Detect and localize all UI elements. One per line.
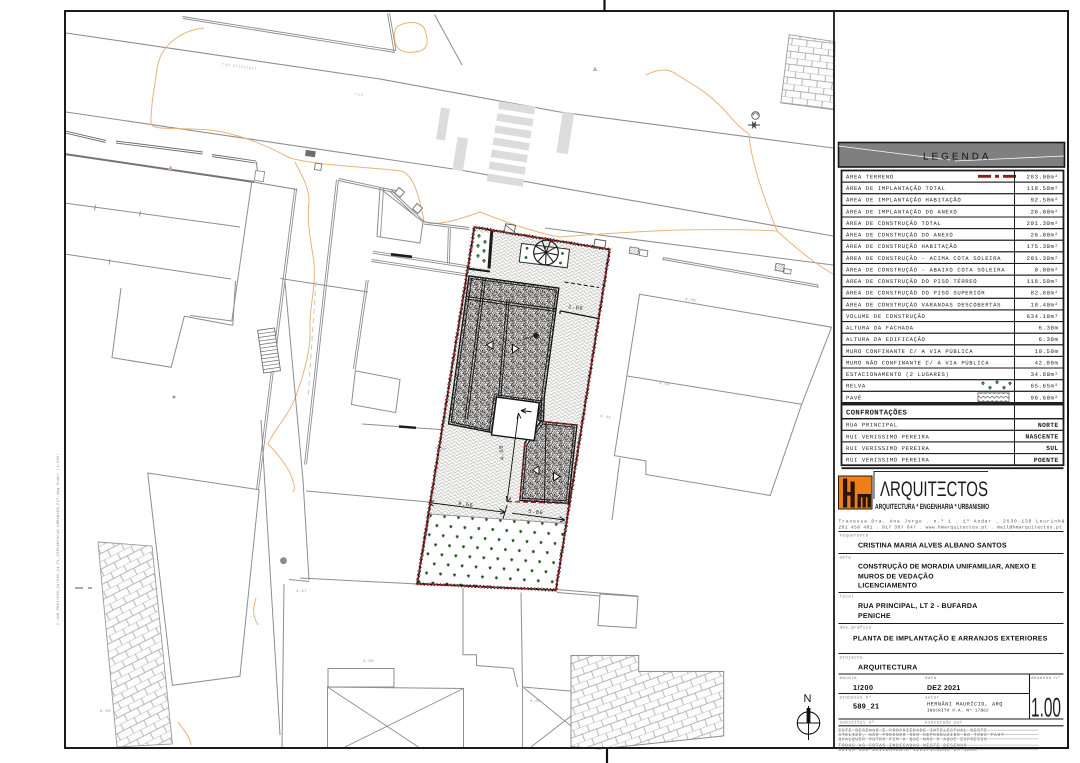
svg-text:ÁREA DE CONSTRUÇÃO TOTAL: ÁREA DE CONSTRUÇÃO TOTAL [846, 220, 941, 227]
svg-text:ÁREA DE CONSTRUÇÃO DO PISO SUP: ÁREA DE CONSTRUÇÃO DO PISO SUPERIOR [846, 290, 985, 297]
svg-text:634.10m³: 634.10m³ [1027, 313, 1059, 320]
svg-text:82.80m²: 82.80m² [1031, 290, 1059, 297]
svg-text:HERNÂNI MAURÍCIO, ARQ: HERNÂNI MAURÍCIO, ARQ [927, 701, 1003, 708]
svg-text:18.40m²: 18.40m² [1031, 301, 1059, 308]
svg-text:LICENCIAMENTO: LICENCIAMENTO [858, 583, 917, 590]
svg-text:201.30m²: 201.30m² [1027, 255, 1059, 262]
svg-text:Travessa Dra. Ana Jorge . n.º: Travessa Dra. Ana Jorge . n.º 1 . 1º And… [839, 519, 1066, 525]
svg-text:DEVEM SER DEVIDAMENTE VERIFICA: DEVEM SER DEVIDAMENTE VERIFICADAS EM OBR… [839, 748, 978, 753]
svg-text:VOLUME DE CONSTRUÇÃO: VOLUME DE CONSTRUÇÃO [846, 313, 926, 320]
svg-text:MUROS DE VEDAÇÃO: MUROS DE VEDAÇÃO [858, 572, 934, 581]
svg-text:ÁREA DE IMPLANTAÇÃO DO ANEXO: ÁREA DE IMPLANTAÇÃO DO ANEXO [846, 208, 957, 215]
svg-text:ÁREA DE IMPLANTAÇÃO HABITAÇÃO: ÁREA DE IMPLANTAÇÃO HABITAÇÃO [846, 197, 961, 204]
svg-text:42.00m: 42.00m [1035, 359, 1059, 366]
svg-text:ÁREA DE CONSTRUÇÃO HABITAÇÃO: ÁREA DE CONSTRUÇÃO HABITAÇÃO [846, 243, 957, 250]
svg-text:DEZ 2021: DEZ 2021 [927, 685, 961, 692]
svg-text:118.50m²: 118.50m² [1027, 185, 1059, 192]
svg-text:POENTE: POENTE [1034, 457, 1059, 464]
svg-text:ESTACIONAMENTO (2 LUGARES): ESTACIONAMENTO (2 LUGARES) [846, 371, 949, 378]
svg-text:ALTURA DA EDIFICAÇÃO: ALTURA DA EDIFICAÇÃO [846, 336, 926, 343]
svg-text:N: N [804, 693, 812, 705]
svg-text:201.30m²: 201.30m² [1027, 220, 1059, 227]
svg-text:PLANTA DE IMPLANTAÇÃO E ARRANJ: PLANTA DE IMPLANTAÇÃO E ARRANJOS EXTERIO… [853, 634, 1048, 643]
svg-text:ÁREA DE CONSTRUÇÃO - ABAIXO CO: ÁREA DE CONSTRUÇÃO - ABAIXO COTA SOLEIRA [846, 267, 1005, 274]
svg-text:589_21: 589_21 [853, 702, 879, 711]
svg-text:4.60: 4.60 [530, 699, 541, 704]
svg-text:ÁREA DE CONSTRUÇÃO DO PISO TÉR: ÁREA DE CONSTRUÇÃO DO PISO TÉRREO [846, 278, 977, 285]
svg-text:RUI VERISSIMO PEREIRA: RUI VERISSIMO PEREIRA [846, 433, 930, 440]
svg-text:QUALQUER OUTRO FIM A QUE NÃO O: QUALQUER OUTRO FIM A QUE NÃO O AQUI EXPR… [839, 736, 988, 742]
svg-text:261 459 481 . 917 367 647 . ww: 261 459 481 . 917 367 647 . www.hmarquit… [839, 525, 1063, 531]
svg-text:NORTE: NORTE [1038, 422, 1059, 429]
svg-text:INSCRITO O.A. Nº 17862: INSCRITO O.A. Nº 17862 [927, 709, 989, 714]
svg-text:MURO CONFINANTE C/ A VIA PÚBLI: MURO CONFINANTE C/ A VIA PÚBLICA [846, 348, 973, 355]
svg-text:0.00m²: 0.00m² [1035, 267, 1059, 274]
svg-text:LEGENDA: LEGENDA [923, 152, 992, 163]
svg-text:RUA PRINCIPAL, LT 2 - BUFARDA: RUA PRINCIPAL, LT 2 - BUFARDA [858, 603, 978, 610]
svg-text:SUL: SUL [1046, 445, 1058, 452]
svg-text:autor: autor [925, 696, 940, 701]
svg-text:CONFRONTAÇÕES: CONFRONTAÇÕES [846, 409, 908, 418]
svg-text:processo nº: processo nº [840, 696, 872, 701]
svg-text:ÁREA DE CONSTRUÇÃO DO ANEXO: ÁREA DE CONSTRUÇÃO DO ANEXO [846, 232, 953, 239]
svg-text:requerente: requerente [840, 534, 869, 539]
svg-text:MURO NÃO CONFINANTE C/ A VIA P: MURO NÃO CONFINANTE C/ A VIA PÚBLICA [846, 359, 989, 366]
svg-text:RUI VERISSIMO PEREIRA: RUI VERISSIMO PEREIRA [846, 457, 930, 464]
svg-text:6.30m: 6.30m [1039, 325, 1059, 332]
svg-text:ALTURA DA FACHADA: ALTURA DA FACHADA [846, 325, 914, 332]
svg-text:8.90: 8.90 [100, 709, 111, 714]
svg-text:96.60m²: 96.60m² [1031, 394, 1059, 401]
svg-text:CRISTINA MARIA ALVES ALBANO SA: CRISTINA MARIA ALVES ALBANO SANTOS [858, 543, 1007, 550]
svg-text:ΛRQUITΞCTOS: ΛRQUITΞCTOS [880, 478, 988, 501]
svg-text:ÁREA DE CONSTRUÇÃO VARANDAS DE: ÁREA DE CONSTRUÇÃO VARANDAS DESCOBERTAS [846, 301, 1001, 308]
svg-text:ÁREA TERRENO: ÁREA TERRENO [846, 174, 894, 181]
svg-text:4.60: 4.60 [363, 659, 374, 664]
svg-text:PAVÊ: PAVÊ [846, 394, 862, 401]
svg-text:10.50m: 10.50m [1035, 348, 1059, 355]
svg-text:6.30m: 6.30m [1039, 336, 1059, 343]
svg-text:RUA PRINCIPAL: RUA PRINCIPAL [846, 422, 898, 429]
svg-text:RUI VERISSIMO PEREIRA: RUI VERISSIMO PEREIRA [846, 445, 930, 452]
svg-text:NASCENTE: NASCENTE [1025, 434, 1058, 441]
svg-text:PENICHE: PENICHE [858, 613, 891, 620]
svg-text:26.00m²: 26.00m² [1031, 208, 1059, 215]
svg-text:ARQUITECTURA * ENGENHARIA * UR: ARQUITECTURA * ENGENHARIA * URBANISMO [875, 502, 989, 511]
svg-text:C:\HM_PROJ\589_21\589_21_PL_IM: C:\HM_PROJ\589_21\589_21_PL_IMPLANTACAO_… [56, 453, 61, 625]
svg-text:4.57: 4.57 [296, 589, 307, 594]
svg-text:CONSTRUÇÃO DE MORADIA UNIFAMIL: CONSTRUÇÃO DE MORADIA UNIFAMILIAR, ANEXO… [858, 562, 1037, 571]
svg-text:ÁREA DE IMPLANTAÇÃO TOTAL: ÁREA DE IMPLANTAÇÃO TOTAL [846, 185, 945, 192]
svg-text:1/200: 1/200 [853, 683, 874, 692]
svg-text:34.80m²: 34.80m² [1031, 371, 1059, 378]
svg-text:1.00: 1.00 [1031, 693, 1061, 723]
svg-text:ARQUITECTURA: ARQUITECTURA [858, 665, 918, 672]
svg-text:65.65m²: 65.65m² [1031, 383, 1059, 390]
svg-text:283.00m²: 283.00m² [1027, 174, 1059, 181]
svg-text:92.50m²: 92.50m² [1031, 197, 1059, 204]
svg-text:118.50m²: 118.50m² [1027, 278, 1059, 285]
svg-text:175.30m²: 175.30m² [1027, 243, 1059, 250]
svg-text:26.00m²: 26.00m² [1031, 232, 1059, 239]
svg-text:ÁREA DE CONSTRUÇÃO - ACIMA COT: ÁREA DE CONSTRUÇÃO - ACIMA COTA SOLEIRA [846, 255, 1001, 262]
svg-text:RELVA: RELVA [846, 383, 866, 390]
